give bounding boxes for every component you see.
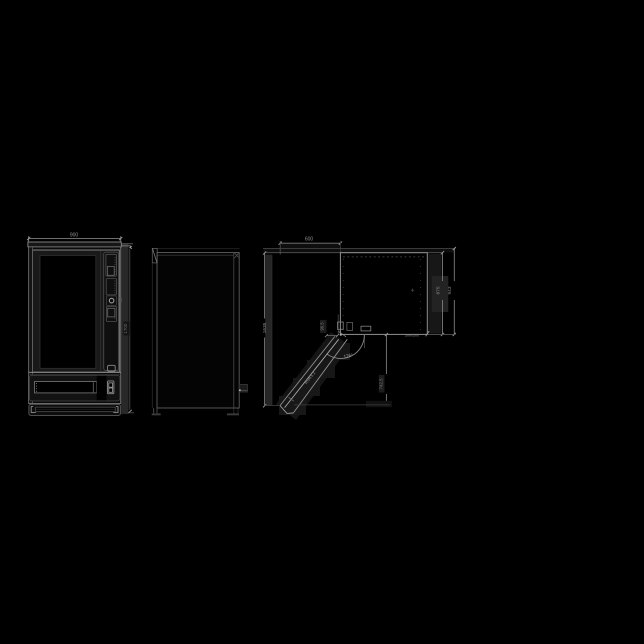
svg-text:875: 875 xyxy=(436,286,442,294)
svg-text:1700: 1700 xyxy=(123,323,128,334)
svg-text:600: 600 xyxy=(305,237,314,243)
svg-text:126°: 126° xyxy=(343,352,353,359)
svg-text:1635: 1635 xyxy=(262,322,268,333)
svg-text:742.5: 742.5 xyxy=(378,378,383,390)
svg-text:96.5: 96.5 xyxy=(319,322,324,331)
svg-text:900: 900 xyxy=(70,233,79,239)
svg-text:943: 943 xyxy=(447,286,453,294)
svg-text:500x500: 500x500 xyxy=(405,333,420,337)
